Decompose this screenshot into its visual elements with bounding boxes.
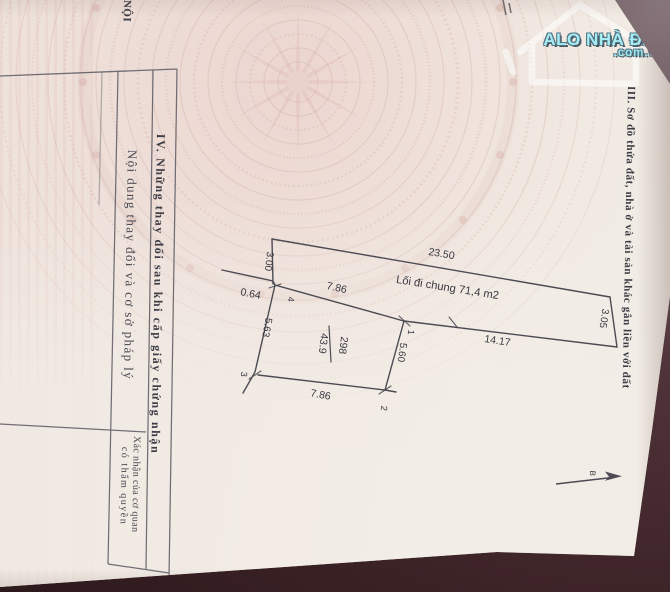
dim-path-top: 23.50 xyxy=(428,246,456,262)
corner-label-4: 4 xyxy=(286,296,296,302)
brand-domain: .com.vn xyxy=(543,48,666,60)
path-label: Lối đi chung 71,4 m2 xyxy=(395,274,499,302)
dim-offset: 0.64 xyxy=(239,286,262,302)
parcel-area: 43.9 xyxy=(316,332,330,354)
table-border-right xyxy=(108,564,169,573)
dim-plot-left: 5.63 xyxy=(259,317,273,339)
dim-path-right: 3.05 xyxy=(597,308,611,329)
column-header-right-line1: Xác nhận của cơ quan xyxy=(129,436,142,544)
path-right-edge xyxy=(610,297,617,347)
dim-path-bottom: 14.17 xyxy=(484,333,512,349)
brand-watermark: ALO NHÀ ĐẤT .com.vn xyxy=(543,31,666,60)
corner-label-1: 1 xyxy=(406,329,416,335)
north-label: B xyxy=(588,470,597,476)
corner-label-3: 3 xyxy=(239,371,249,377)
dim-left-width: 3.00 xyxy=(262,251,275,272)
photo-backdrop: 23.50 Lối đi chung 71,4 m2 14.17 3.05 7.… xyxy=(0,0,670,592)
brand-name: ALO NHÀ ĐẤT xyxy=(543,31,666,48)
table-line-header xyxy=(108,72,118,564)
dim-plot-bottom: 7.86 xyxy=(309,387,331,403)
dim-plot-top: 7.86 xyxy=(325,280,348,296)
corner-label-2: 2 xyxy=(379,405,389,411)
column-header-right-line2: có thẩm quyền xyxy=(117,447,130,547)
parcel-number: 298 xyxy=(336,336,350,355)
parcel-diagram xyxy=(222,239,617,394)
table-border-top xyxy=(169,69,177,578)
certificate-paper: 23.50 Lối đi chung 71,4 m2 14.17 3.05 7.… xyxy=(0,0,670,592)
